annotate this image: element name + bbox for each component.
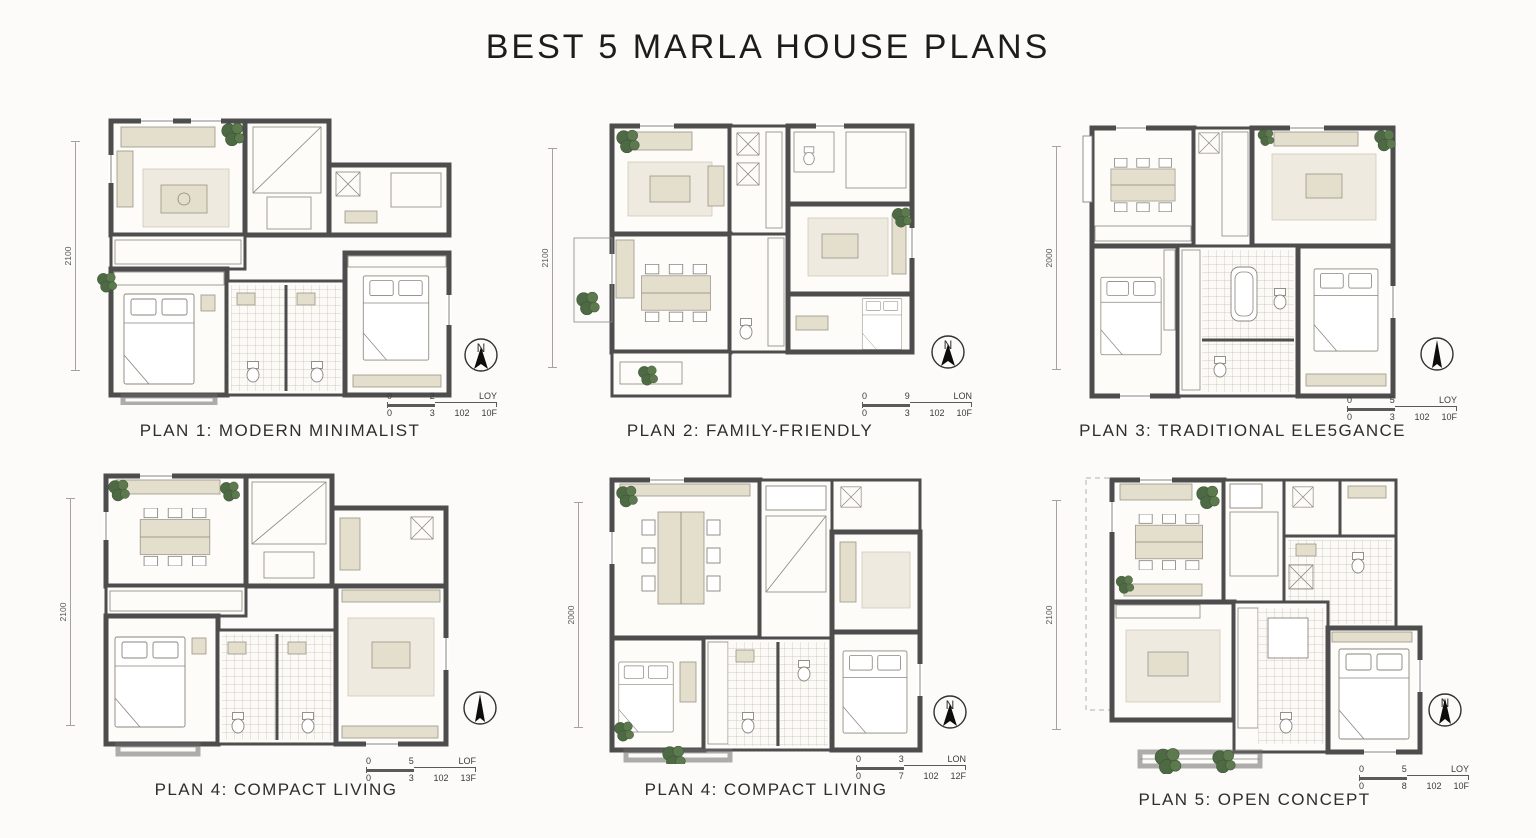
closet xyxy=(106,586,246,616)
north-arrow xyxy=(458,688,502,738)
scale-bar: 0 5 LOY 0 8 102 10F xyxy=(1357,764,1469,792)
dimension-line: 2100 xyxy=(75,141,76,371)
closet xyxy=(111,235,245,269)
north-arrow xyxy=(1415,334,1459,384)
plan-card-2: 2100 xyxy=(570,118,930,405)
bathroom xyxy=(218,630,336,744)
bathroom xyxy=(227,281,345,395)
top-right-room xyxy=(832,480,920,532)
staircase xyxy=(246,476,332,586)
dimension-label: 2000 xyxy=(1044,246,1054,271)
plan-caption: PLAN 4: COMPACT LIVING xyxy=(60,780,492,800)
plant-icon xyxy=(1213,750,1236,773)
dimension-line: 2000 xyxy=(578,502,579,728)
scale-bar: 0 9 LON 0 3 102 10F xyxy=(860,391,972,419)
right-hall xyxy=(832,532,920,632)
dimension-label: 2100 xyxy=(540,246,550,271)
dimension-line: 2000 xyxy=(1056,146,1057,370)
upper-hall xyxy=(332,508,446,586)
dimension-line: 2100 xyxy=(552,148,553,368)
plan-caption: PLAN 5: OPEN CONCEPT xyxy=(1052,790,1457,810)
floor-plan-drawing xyxy=(600,472,932,764)
dimension-label: 2100 xyxy=(63,244,73,269)
bedroom-right xyxy=(1298,246,1393,396)
staircase xyxy=(1194,128,1252,246)
closet-column xyxy=(730,126,788,234)
scale-bottom-row: 0 3 102 10F xyxy=(385,408,497,419)
lounge xyxy=(1112,602,1234,720)
bathroom-lower xyxy=(1234,602,1328,752)
scale-bar: 0 3 LON 0 7 102 12F xyxy=(854,754,966,782)
north-arrow: N xyxy=(928,692,972,742)
bathroom xyxy=(1178,246,1298,396)
living-room xyxy=(1252,128,1393,246)
plan-caption: PLAN 3: TRADITIONAL ELE5GANCE xyxy=(1050,421,1435,441)
floor-plan-drawing xyxy=(95,113,465,405)
plant-icon xyxy=(97,273,116,292)
porch xyxy=(123,396,215,404)
bedroom-right xyxy=(832,632,920,750)
plan-card-1: 2100 xyxy=(95,113,465,405)
plan-caption: PLAN 4: COMPACT LIVING xyxy=(570,780,962,800)
scale-bar: 0 5 LOY 0 3 102 10F xyxy=(1345,395,1457,423)
scale-top-row: 0 5 LOF xyxy=(364,756,476,767)
dining-room xyxy=(1083,128,1194,246)
bedroom-right xyxy=(345,253,449,395)
dimension-label: 2100 xyxy=(1044,603,1054,628)
bedroom xyxy=(1328,628,1420,752)
scale-bottom-row: 0 3 102 10F xyxy=(860,408,972,419)
floor-plan-drawing xyxy=(1080,120,1405,405)
living-room xyxy=(336,586,446,744)
north-arrow: N xyxy=(459,335,503,385)
plant-icon xyxy=(1155,748,1181,774)
page-title: BEST 5 MARLA HOUSE PLANS xyxy=(0,28,1536,67)
dimension-label: 2100 xyxy=(58,600,68,625)
dimension-line: 2100 xyxy=(70,498,71,726)
upper-right-room xyxy=(788,126,912,204)
scale-top-row: 0 3 LON xyxy=(854,754,966,765)
scale-top-row: 0 2 LOY xyxy=(385,391,497,402)
dining-room xyxy=(612,234,730,352)
floor-plan-drawing xyxy=(90,468,462,764)
staircase xyxy=(245,121,329,235)
scale-top-row: 0 5 LOY xyxy=(1357,764,1469,775)
hallway xyxy=(730,234,788,352)
bathroom xyxy=(704,638,832,750)
staircase xyxy=(1224,480,1284,602)
plan-card-4b: 2000 xyxy=(600,472,932,764)
north-arrow: N xyxy=(1423,690,1467,740)
bottom-strip xyxy=(612,352,730,396)
plan-card-4a: 2100 xyxy=(90,468,462,764)
plan-caption: PLAN 2: FAMILY-FRIENDLY xyxy=(540,421,960,441)
scale-top-row: 0 9 LON xyxy=(860,391,972,402)
floor-plan-drawing xyxy=(570,118,930,405)
living-room xyxy=(111,121,245,235)
top-closet-room xyxy=(1284,480,1340,536)
bedroom xyxy=(788,294,912,352)
dimension-label: 2000 xyxy=(566,603,576,628)
floor-plan-drawing xyxy=(1082,468,1427,774)
plan-card-5: 2100 xyxy=(1082,468,1427,774)
upper-hall xyxy=(329,165,449,235)
bedroom-left xyxy=(106,616,218,744)
bedroom-left xyxy=(111,269,227,395)
scale-top-row: 0 5 LOY xyxy=(1345,395,1457,406)
scale-bar: 0 2 LOY 0 3 102 10F xyxy=(385,391,497,419)
porch xyxy=(118,745,198,754)
bedroom-left xyxy=(1092,246,1178,396)
plant-icon xyxy=(577,292,600,315)
plan-caption: PLAN 1: MODERN MINIMALIST xyxy=(65,421,495,441)
plan-card-3: 2000 xyxy=(1080,120,1405,405)
dimension-line: 2100 xyxy=(1056,500,1057,730)
north-arrow: N xyxy=(926,332,970,382)
top-right-room xyxy=(1340,480,1396,536)
staircase xyxy=(760,480,832,638)
